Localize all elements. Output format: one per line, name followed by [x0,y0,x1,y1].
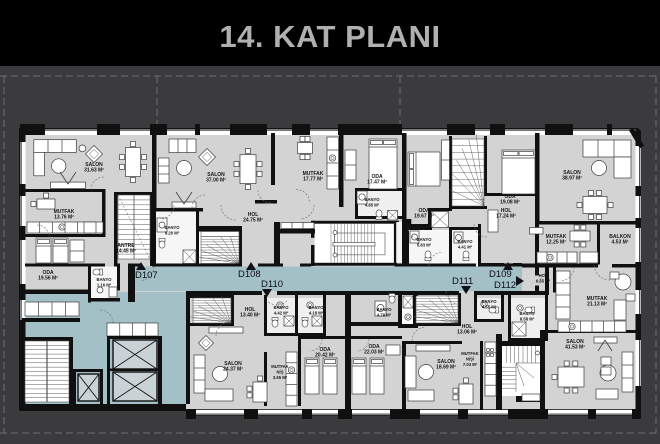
svg-text:19.67 M²: 19.67 M² [414,214,434,220]
svg-text:38.97 M²: 38.97 M² [562,176,582,182]
svg-text:17.77 M²: 17.77 M² [303,177,323,183]
svg-text:BANYO: BANYO [364,197,380,202]
svg-text:7.03 M²: 7.03 M² [463,362,478,367]
svg-text:D111: D111 [452,276,473,287]
svg-text:HOL: HOL [539,273,548,278]
svg-text:31.63 M²: 31.63 M² [84,168,104,174]
svg-text:BANYO: BANYO [308,305,324,310]
svg-text:12.25 M²: 12.25 M² [546,240,566,246]
svg-text:24.37 M²: 24.37 M² [223,367,243,373]
svg-text:BANYO: BANYO [481,299,497,304]
svg-text:14. KAT PLANI: 14. KAT PLANI [219,19,440,54]
svg-text:6.55 M²: 6.55 M² [536,279,551,284]
svg-text:4.53 M²: 4.53 M² [612,240,629,246]
svg-text:BANYO: BANYO [519,311,535,316]
svg-text:MUTFAK: MUTFAK [271,364,288,369]
svg-text:21.13 M²: 21.13 M² [587,302,607,308]
svg-text:4.41 M²: 4.41 M² [458,245,473,250]
svg-text:D109: D109 [489,269,512,280]
svg-text:14.45 M²: 14.45 M² [116,249,136,255]
svg-text:41.53 M²: 41.53 M² [565,345,585,351]
svg-text:4.55 M²: 4.55 M² [482,305,497,310]
svg-text:13.06 M²: 13.06 M² [457,330,477,336]
svg-text:BANYO: BANYO [273,305,289,310]
svg-text:NİŞİ: NİŞİ [466,357,474,362]
svg-text:4.42 M²: 4.42 M² [274,311,289,316]
svg-text:BANYO: BANYO [96,277,112,282]
svg-text:19.08 M²: 19.08 M² [500,200,520,206]
svg-text:8.58 M²: 8.58 M² [520,317,535,322]
svg-text:4.79 M²: 4.79 M² [377,313,392,318]
svg-text:19.56 M²: 19.56 M² [38,276,58,282]
svg-text:D108: D108 [238,269,261,280]
svg-text:5.83 M²: 5.83 M² [417,243,432,248]
svg-text:MUTFAK: MUTFAK [461,351,478,356]
svg-text:17.24 M²: 17.24 M² [496,214,516,220]
svg-text:BANYO: BANYO [164,225,180,230]
svg-text:D112: D112 [494,280,516,291]
svg-text:4.18 M²: 4.18 M² [309,311,324,316]
svg-text:37.00 M²: 37.00 M² [206,178,226,184]
svg-text:D107: D107 [135,270,158,281]
svg-text:20.42 M²: 20.42 M² [315,353,335,359]
svg-text:BANYO: BANYO [457,239,473,244]
svg-text:NİŞ: NİŞ [277,370,284,375]
svg-text:13.76 M²: 13.76 M² [54,215,74,221]
svg-text:17.47 M²: 17.47 M² [367,180,387,186]
svg-text:4.85 M²: 4.85 M² [365,203,380,208]
svg-text:13.40 M²: 13.40 M² [240,313,260,319]
svg-text:1.16 M²: 1.16 M² [97,283,112,288]
svg-text:BANYO: BANYO [376,307,392,312]
svg-text:22.03 M²: 22.03 M² [364,350,384,356]
svg-text:9.20 M²: 9.20 M² [165,231,180,236]
svg-text:BANYO: BANYO [416,237,432,242]
svg-text:18.69 M²: 18.69 M² [436,365,456,371]
svg-text:3.65 M²: 3.65 M² [273,375,288,380]
svg-text:D110: D110 [261,279,283,290]
svg-text:24.75 M²: 24.75 M² [243,218,263,224]
